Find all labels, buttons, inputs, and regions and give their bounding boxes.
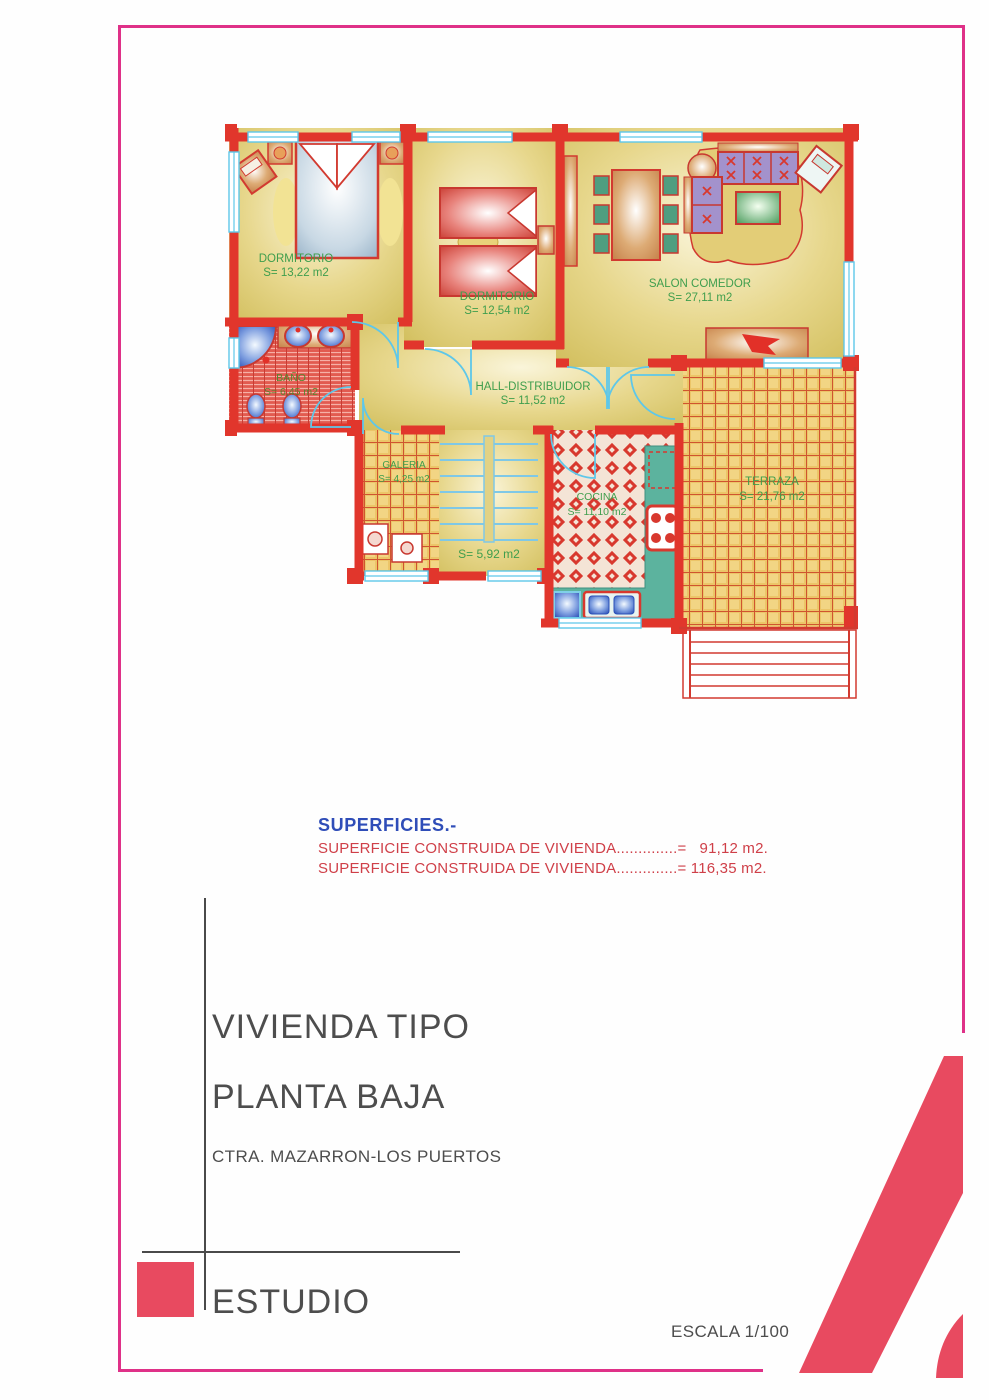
cocina-area: S= 11,10 m2 bbox=[567, 506, 626, 518]
frame-left bbox=[118, 25, 121, 1372]
bano-area: S= 6,45 m2 bbox=[264, 386, 318, 398]
salon-label: SALON COMEDOR bbox=[649, 278, 751, 290]
galeria-area: S= 4,25 m2 bbox=[378, 474, 430, 485]
title-block-vline bbox=[204, 898, 206, 1310]
frame-bottom bbox=[118, 1369, 763, 1372]
stove bbox=[647, 506, 678, 550]
dining-table bbox=[612, 170, 660, 260]
escalera-area: S= 5,92 m2 bbox=[458, 547, 520, 561]
floor-plan: DORMITORIO S= 13,22 m2 DORMITORIO S= 12,… bbox=[225, 118, 870, 710]
superficies-line-1: SUPERFICIE CONSTRUIDA DE VIVIENDA.......… bbox=[318, 840, 768, 857]
sofa-three-seat bbox=[718, 152, 798, 184]
project-address: CTRA. MAZARRON-LOS PUERTOS bbox=[212, 1147, 501, 1167]
washer bbox=[554, 592, 580, 618]
sideboard bbox=[564, 156, 577, 266]
title-block-hline bbox=[142, 1251, 460, 1253]
hall-area: S= 11,52 m2 bbox=[501, 395, 566, 407]
galeria-label: GALERIA bbox=[382, 460, 426, 471]
terraza-area: S= 21,76 m2 bbox=[739, 491, 805, 503]
studio-name: ESTUDIO bbox=[212, 1283, 370, 1322]
hall-label: HALL-DISTRIBUIDOR bbox=[475, 381, 590, 393]
dorm1-label: DORMITORIO bbox=[259, 253, 334, 265]
superficies-title: SUPERFICIES.- bbox=[318, 815, 457, 836]
logo-diagonal-band bbox=[799, 1056, 963, 1373]
cocina-label: COCINA bbox=[577, 491, 618, 503]
coffee-table bbox=[736, 192, 780, 224]
frame-top bbox=[118, 25, 965, 28]
logo-leaf-shape bbox=[936, 1314, 963, 1378]
studio-logo-square bbox=[137, 1262, 194, 1317]
corner-logo bbox=[780, 1040, 980, 1385]
dorm1-area: S= 13,22 m2 bbox=[263, 267, 329, 279]
plan-level-title: PLANTA BAJA bbox=[212, 1078, 445, 1117]
exterior-steps bbox=[683, 630, 856, 698]
bano-label: BAÑO bbox=[276, 371, 306, 384]
salon-area: S= 27,11 m2 bbox=[668, 292, 733, 304]
scale-label: ESCALA 1/100 bbox=[671, 1322, 789, 1342]
terraza-label: TERRAZA bbox=[745, 476, 799, 488]
project-title: VIVIENDA TIPO bbox=[212, 1008, 470, 1047]
dorm2-label: DORMITORIO bbox=[460, 291, 535, 303]
frame-right bbox=[962, 25, 965, 1033]
nightstand bbox=[538, 226, 554, 254]
stair-stringer bbox=[484, 436, 494, 542]
toilet bbox=[247, 394, 265, 418]
plan-sheet: DORMITORIO S= 13,22 m2 DORMITORIO S= 12,… bbox=[0, 0, 989, 1400]
dorm2-area: S= 12,54 m2 bbox=[464, 305, 530, 317]
superficies-line-2: SUPERFICIE CONSTRUIDA DE VIVIENDA.......… bbox=[318, 860, 767, 877]
